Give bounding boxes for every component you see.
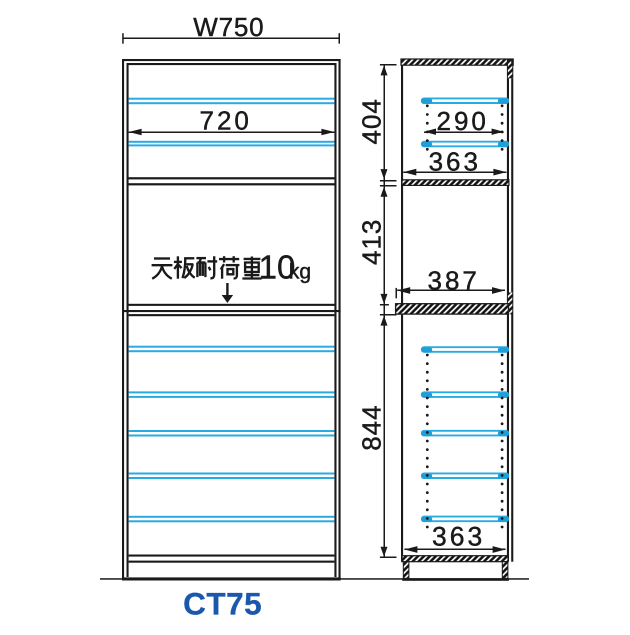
svg-text:413: 413 <box>357 219 387 265</box>
svg-text:363: 363 <box>432 522 485 552</box>
svg-text:720: 720 <box>200 106 252 136</box>
svg-text:CT75: CT75 <box>183 586 262 622</box>
svg-text:kg: kg <box>289 261 311 284</box>
svg-text:W750: W750 <box>193 12 264 42</box>
svg-text:404: 404 <box>357 98 387 144</box>
svg-text:844: 844 <box>357 404 387 450</box>
